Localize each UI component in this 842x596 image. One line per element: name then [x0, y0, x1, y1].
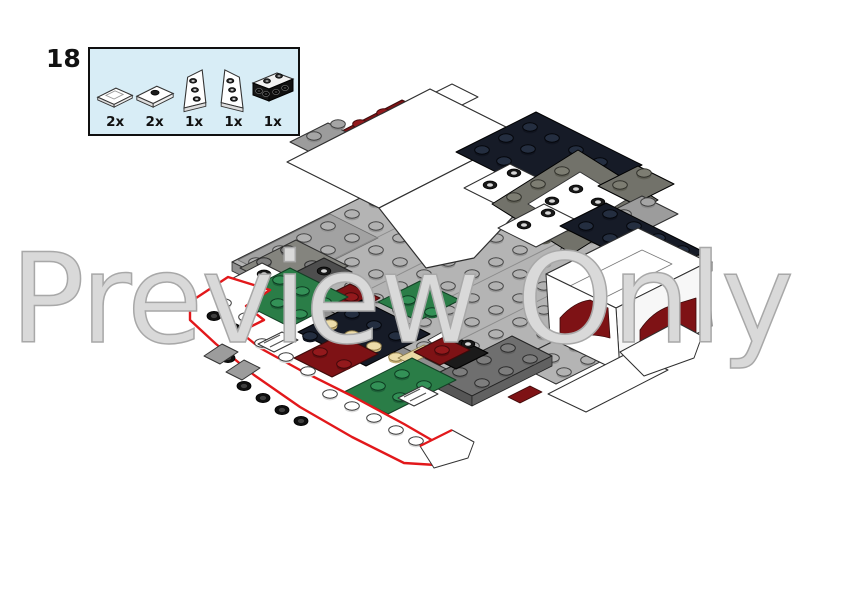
hollow-stud [595, 200, 601, 204]
stud [465, 270, 480, 278]
tile-1x2-icon [95, 63, 135, 115]
stud [453, 368, 468, 376]
stud [331, 120, 346, 128]
stud [513, 270, 528, 278]
hollow-stud [573, 187, 579, 191]
stud [613, 181, 628, 189]
stud [323, 320, 338, 328]
stud [317, 298, 332, 306]
stud [313, 348, 328, 356]
wedge-plate-right-icon [213, 63, 253, 115]
stud [303, 332, 318, 340]
stud [523, 123, 538, 131]
bracket-1x4-icon [251, 63, 295, 115]
stud [507, 193, 522, 201]
stud [301, 367, 316, 375]
stud [425, 308, 440, 316]
wedge-plate-left-icon [174, 63, 214, 115]
stud [513, 294, 528, 302]
stud [389, 426, 404, 434]
stud [465, 294, 480, 302]
stud [641, 198, 656, 206]
stud [271, 299, 286, 307]
dark-red-sliver [508, 386, 542, 403]
stud [545, 134, 560, 142]
jumper-plate-icon [135, 63, 175, 115]
stud [367, 321, 382, 329]
stud [489, 306, 504, 314]
stud [501, 344, 516, 352]
stud [369, 222, 384, 230]
part-count: 1x [185, 116, 203, 130]
part-wedge-right: 1x [214, 63, 252, 130]
stud [603, 210, 618, 218]
stud [475, 379, 490, 387]
hollow-stud [261, 272, 267, 276]
stud [371, 382, 386, 390]
stud [321, 222, 336, 230]
stud [521, 145, 536, 153]
stud [499, 134, 514, 142]
stud [579, 222, 594, 230]
stud [279, 353, 294, 361]
stud [513, 246, 528, 254]
anti-stud-hole [241, 384, 247, 388]
anti-stud-hole [211, 314, 217, 318]
part-jumper-plate: 2x [135, 63, 173, 130]
hollow-stud [465, 342, 471, 346]
stud [389, 332, 404, 340]
hollow-stud [511, 171, 517, 175]
stud [513, 318, 528, 326]
anti-stud-hole [298, 419, 304, 423]
part-count: 1x [224, 116, 242, 130]
stud [557, 368, 572, 376]
stud [345, 210, 360, 218]
stud [293, 310, 308, 318]
hollow-stud [321, 269, 327, 273]
stud [369, 270, 384, 278]
stud [345, 402, 360, 410]
part-tile-1x2: 2x [96, 63, 134, 130]
stud [239, 313, 254, 321]
part-count: 2x [146, 116, 164, 130]
hollow-stud [487, 183, 493, 187]
stud [435, 346, 450, 354]
stud [489, 258, 504, 266]
stud [409, 437, 424, 445]
part-wedge-left: 1x [175, 63, 213, 130]
stud [395, 370, 410, 378]
stud [523, 355, 538, 363]
stud [367, 414, 382, 422]
part-count: 1x [264, 116, 282, 130]
stud [369, 246, 384, 254]
stud [217, 299, 232, 307]
step-number: 18 [46, 44, 81, 73]
hollow-stud [545, 211, 551, 215]
anti-stud-hole [279, 408, 285, 412]
stud [475, 146, 490, 154]
stud [323, 390, 338, 398]
anti-stud-hole [260, 396, 266, 400]
stud [417, 270, 432, 278]
stud [307, 132, 322, 140]
stud [273, 276, 288, 284]
stud [393, 258, 408, 266]
stud [465, 318, 480, 326]
stud [401, 296, 416, 304]
stud [537, 258, 552, 266]
stud [295, 287, 310, 295]
anti-stud-hole [230, 326, 236, 330]
stud [489, 282, 504, 290]
hollow-stud [549, 199, 555, 203]
part-bracket: 1x [254, 63, 292, 130]
parts-callout-box: 2x 2x 1x 1x [88, 47, 300, 136]
stud [555, 167, 570, 175]
hollow-stud [521, 223, 527, 227]
stud [345, 310, 360, 318]
part-count: 2x [106, 116, 124, 130]
stud [637, 169, 652, 177]
stud [531, 180, 546, 188]
stud [337, 360, 352, 368]
stud [345, 234, 360, 242]
stud [489, 330, 504, 338]
stud [441, 282, 456, 290]
stud [499, 367, 514, 375]
stud [281, 246, 296, 254]
